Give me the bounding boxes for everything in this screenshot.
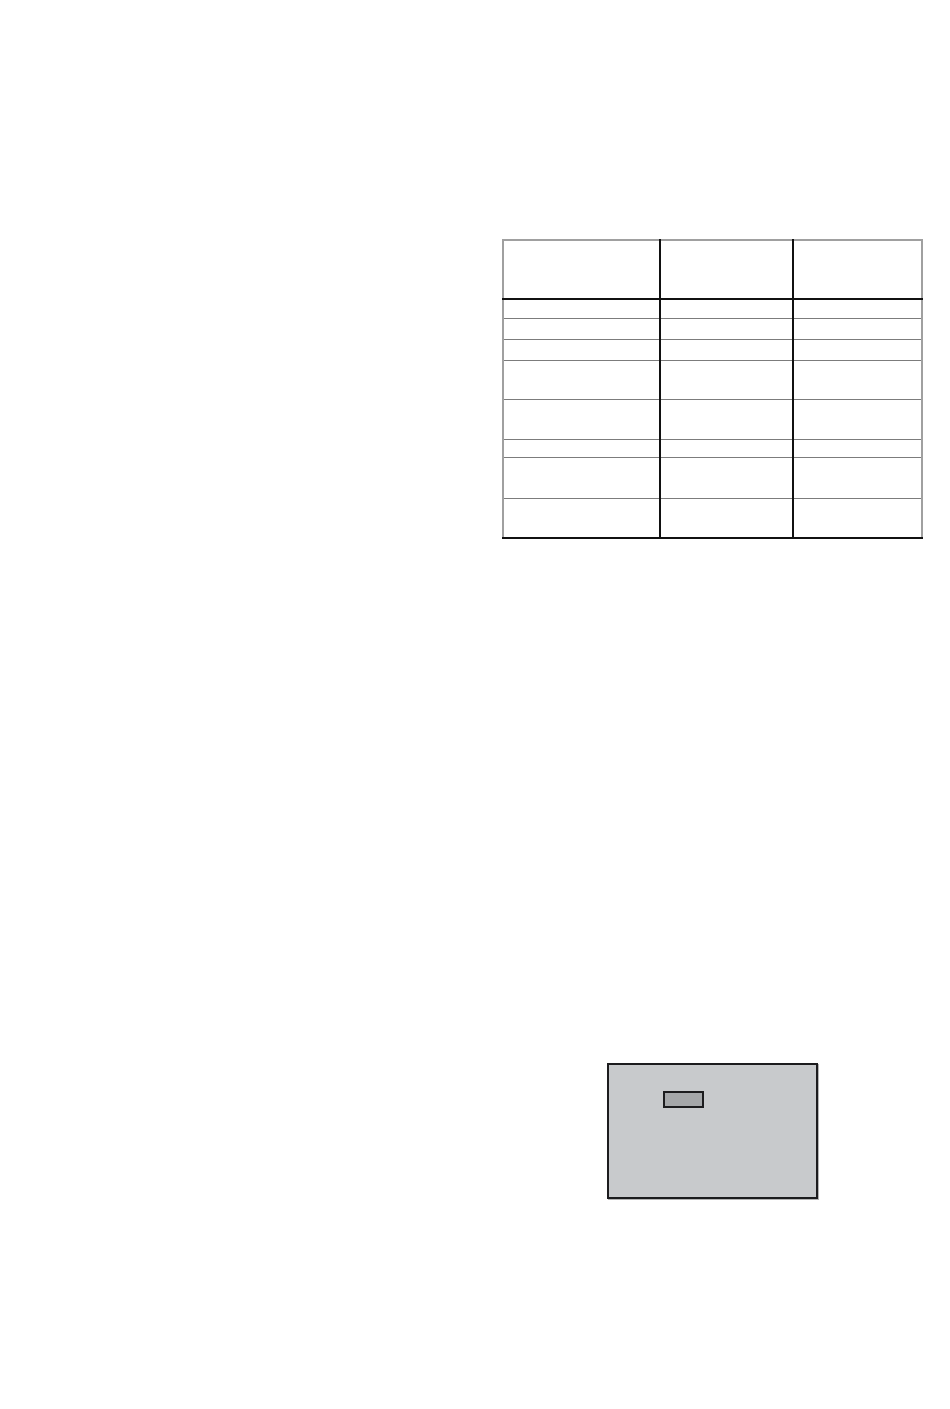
table-row [503,339,922,360]
empty-data-table [502,239,923,539]
table-header-cell [793,240,922,299]
table-cell [660,360,793,399]
table-header-row [503,240,922,299]
table-row [503,457,922,498]
table-cell [660,399,793,439]
table-row [503,299,922,318]
table-row [503,399,922,439]
illustration-display-window [663,1091,704,1108]
table-cell [503,299,660,318]
table-cell [793,498,922,538]
table-cell [503,360,660,399]
table-cell [793,318,922,339]
table-header-cell [503,240,660,299]
table-cell [503,318,660,339]
table-cell [660,339,793,360]
table-row [503,439,922,457]
table-row [503,498,922,538]
table-cell [793,339,922,360]
table-cell [503,399,660,439]
table-row [503,360,922,399]
table-cell [660,299,793,318]
table-cell [793,299,922,318]
table-cell [660,457,793,498]
table-cell [660,318,793,339]
table-cell [660,498,793,538]
table-cell [503,339,660,360]
table-row [503,318,922,339]
table-cell [503,498,660,538]
table-header-cell [660,240,793,299]
table-cell [793,360,922,399]
table-cell [660,439,793,457]
table-cell [793,439,922,457]
table-cell [793,457,922,498]
table-cell [503,439,660,457]
table-cell [503,457,660,498]
table-cell [793,399,922,439]
illustration-panel [607,1063,818,1199]
